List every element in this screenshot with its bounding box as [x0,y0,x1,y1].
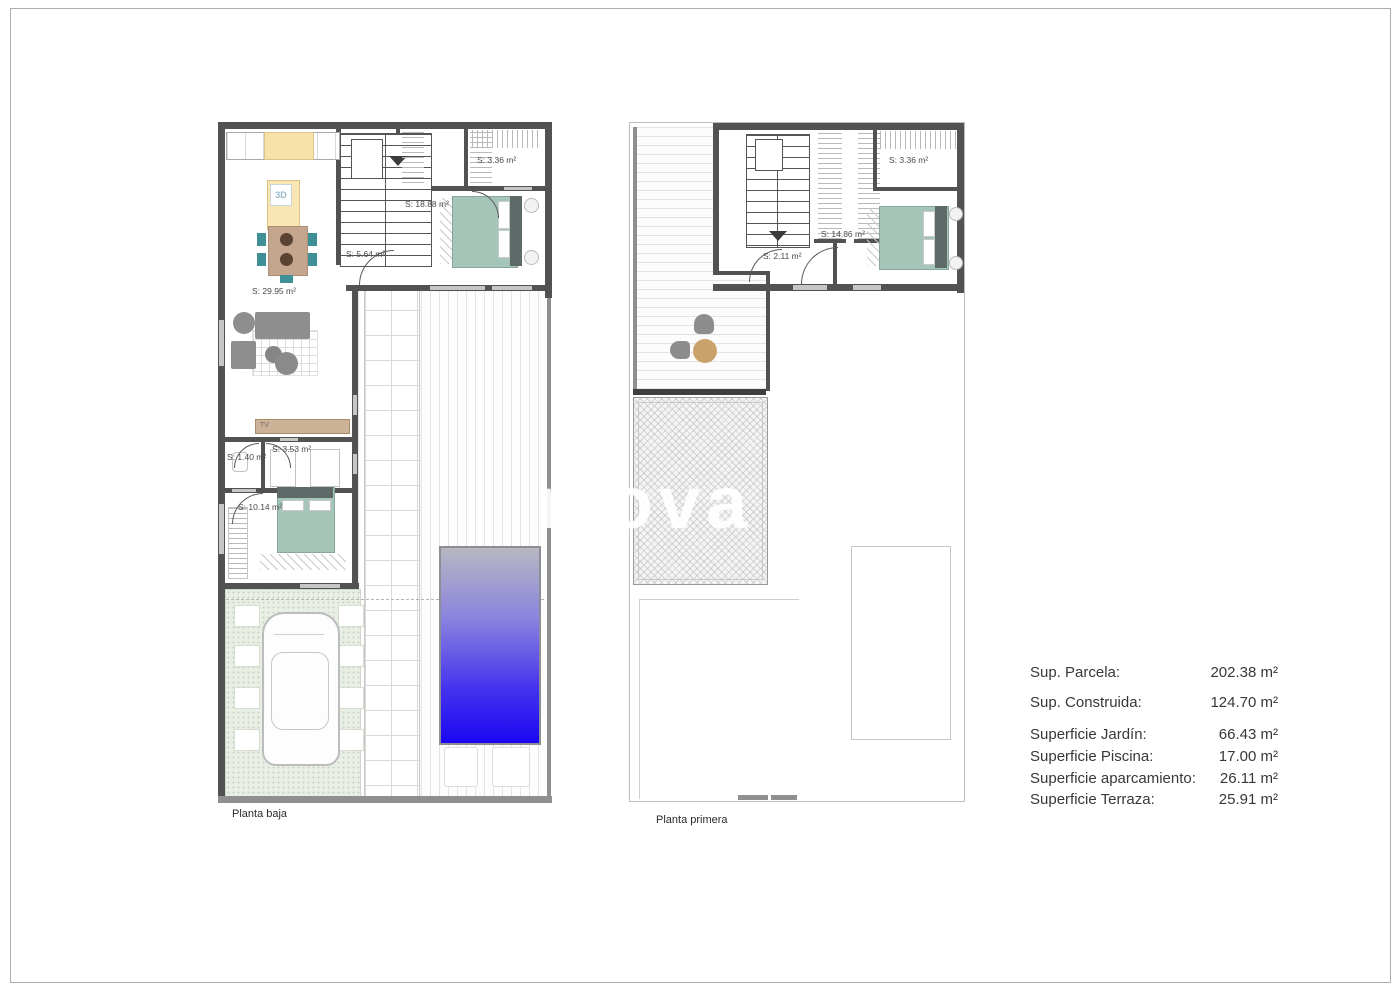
bed-headboard [277,487,333,498]
projection-line [639,599,799,600]
floorplan-sheet: 3D TV [0,0,1400,990]
grass-paver [338,645,364,667]
bed-headboard [935,206,947,268]
projection-line [639,599,640,799]
wall [464,128,468,190]
swimming-pool [439,546,541,745]
area-label: Superficie Piscina: [1030,748,1153,765]
door-opening [280,438,298,441]
stair-landing [755,139,783,171]
plot-wall [547,298,551,803]
room-label-living: S: 29.95 m² [252,286,296,296]
wall [814,239,846,243]
area-label: Superficie Terraza: [1030,791,1155,808]
window [353,395,357,415]
chair [257,253,266,266]
pillow [923,211,935,237]
first-floor-title: Planta primera [656,814,728,826]
stair-landing [351,139,383,179]
wall-stub [771,795,797,800]
terrace [633,127,713,273]
watermark: mova [536,460,753,545]
place-setting [280,233,293,246]
window [219,320,224,366]
terrace-table [693,339,717,363]
table-row: Superficie Jardín: 66.43 m² [1030,726,1278,743]
chair [280,275,293,283]
grass-paver [234,605,260,627]
rug [867,208,879,266]
wall [873,187,964,191]
terrace-wall [633,127,637,395]
chair [308,253,317,266]
door-swing [801,247,838,284]
wardrobe [818,133,842,239]
room-label-hall: S: 5.64 m² [346,249,385,259]
ground-floor-title: Planta baja [232,808,287,820]
table-row: Superficie Piscina: 17.00 m² [1030,748,1278,765]
terrace-chair [694,314,714,334]
area-value: 202.38 m² [1210,664,1278,681]
sofa [255,312,310,339]
pillow [498,230,510,258]
wall [545,122,552,298]
nightstand [949,207,963,221]
stair-direction-arrow [769,231,787,241]
room-label-bedroom: S: 10.14 m² [238,502,282,512]
coffee-table [275,352,298,375]
car-cabin [271,652,329,730]
area-value: 26.11 m² [1220,770,1278,787]
area-label: Superficie aparcamiento: [1030,770,1196,787]
tile-walkway [364,285,420,796]
room-label-closet: S: 3.36 m² [889,155,928,165]
room-label-bedroom: S: 14.86 m² [821,229,865,239]
grass-paver [338,605,364,627]
window [353,454,357,474]
grass-paver [338,729,364,751]
wall [766,271,770,391]
chair [308,233,317,246]
grass-paver [234,687,260,709]
grass-paver [234,729,260,751]
pool-void-outline [851,546,951,740]
grass-paver [234,645,260,667]
kitchen-counter-top [264,132,314,160]
wall-stub [738,795,768,800]
wall [713,123,964,130]
car-outline [262,612,340,766]
table-row: Superficie aparcamiento: 26.11 m² [1030,770,1278,787]
terrace-parapet [633,389,766,395]
table-row: Superficie Terraza: 25.91 m² [1030,791,1278,808]
wall [218,122,225,803]
area-value: 66.43 m² [1219,726,1278,743]
room-label-corridor: S: 18.88 m² [405,199,449,209]
room-label-bathroom: S: 3.53 m² [272,444,311,454]
view3d-badge: 3D [270,184,292,206]
room-label-hall: S: 2.11 m² [763,251,802,261]
table-row: Sup. Parcela: 202.38 m² [1030,664,1278,681]
wall [713,284,964,291]
pouf [233,312,255,334]
room-label-wc: S: 1.40 m² [227,452,266,462]
nightstand [524,198,539,213]
table-row: Sup. Construida: 124.70 m² [1030,694,1278,711]
wall [352,285,358,589]
wall [261,442,265,490]
area-value: 17.00 m² [1219,748,1278,765]
grass-paver [338,687,364,709]
door-opening [504,187,532,190]
room-label-storage: S: 3.36 m² [477,155,516,165]
window [219,504,224,554]
wardrobe [880,131,956,149]
nightstand [949,256,963,270]
car-hood-line [274,634,324,635]
wall [218,122,552,129]
plot-wall [218,796,552,803]
window [853,285,881,290]
staircase [746,134,810,248]
wardrobe [402,132,424,186]
door-opening [232,489,256,492]
place-setting [280,253,293,266]
stair-divider [385,134,386,266]
pool-deck-plate [444,747,478,787]
bed-headboard [510,196,522,266]
window [430,286,485,290]
area-label: Sup. Parcela: [1030,664,1120,681]
rug [260,554,346,570]
window [492,286,532,290]
pool-deck-plate [492,747,530,787]
pillow [309,500,331,511]
area-label: Superficie Jardín: [1030,726,1147,743]
nightstand [524,250,539,265]
armchair [231,341,256,369]
bathtub [310,449,340,487]
area-value: 25.91 m² [1219,791,1278,808]
area-label: Sup. Construida: [1030,694,1142,711]
pillow [923,239,935,265]
pillow [282,500,304,511]
wall [713,123,719,271]
door-opening [300,584,340,588]
wall [873,127,877,191]
area-summary-table: Sup. Parcela: 202.38 m² Sup. Construida:… [1030,664,1278,814]
wardrobe [472,130,540,148]
area-value: 124.70 m² [1210,694,1278,711]
chair [257,233,266,246]
ground-floor-plan: 3D TV [218,122,552,803]
window [793,285,827,290]
tv-sideboard: TV [255,419,350,434]
pillow [498,201,510,229]
terrace-chair [670,341,690,359]
